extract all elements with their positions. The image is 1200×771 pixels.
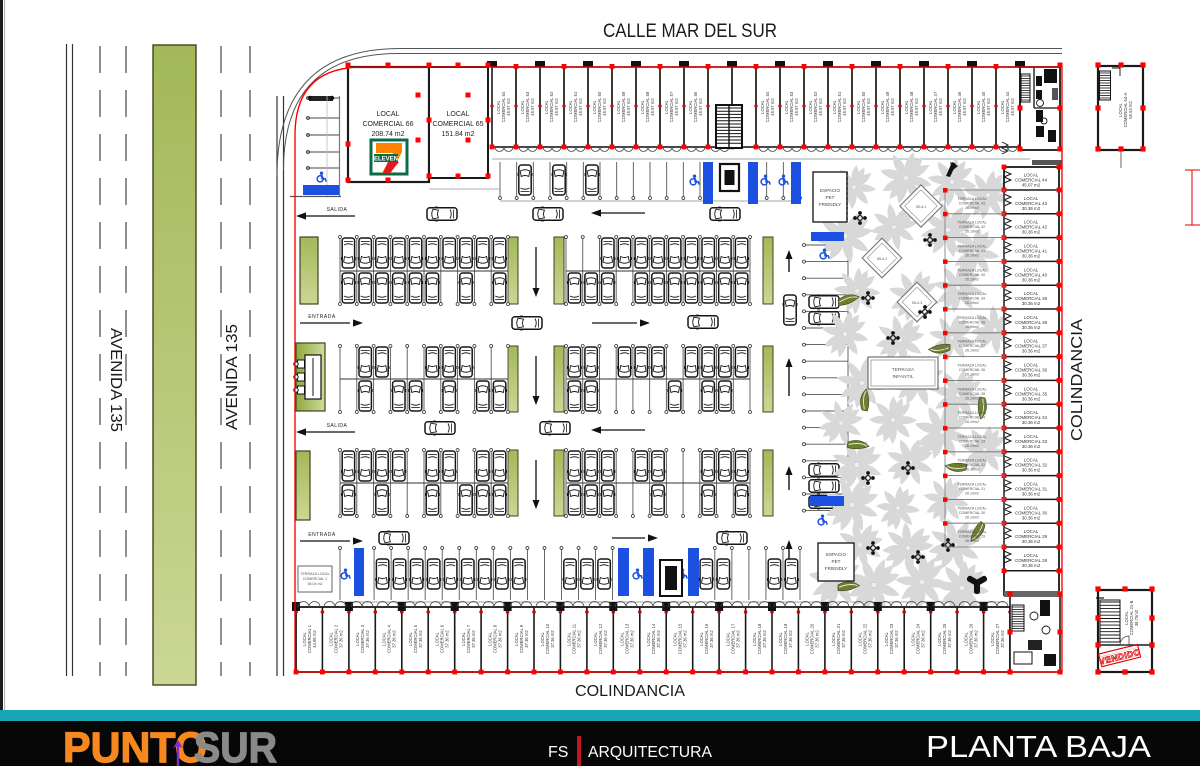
svg-text:26.19m2: 26.19m2 xyxy=(965,492,979,496)
svg-text:COMERCIAL 42: COMERCIAL 42 xyxy=(959,225,985,229)
svg-text:ISLA 1: ISLA 1 xyxy=(916,205,926,209)
svg-text:45.97 m2: 45.97 m2 xyxy=(626,98,631,116)
svg-text:26.19m2: 26.19m2 xyxy=(965,539,979,543)
svg-text:37.36 m2: 37.36 m2 xyxy=(682,630,687,648)
svg-text:TERRAZA LOCAL: TERRAZA LOCAL xyxy=(957,268,986,272)
svg-text:30.36 m2: 30.36 m2 xyxy=(1022,277,1041,282)
svg-text:37.36 m2: 37.36 m2 xyxy=(788,630,793,648)
svg-text:37.36 m2: 37.36 m2 xyxy=(339,630,344,648)
svg-text:COMERCIAL 38: COMERCIAL 38 xyxy=(959,320,985,324)
svg-text:TERRAZA LOCAL: TERRAZA LOCAL xyxy=(957,459,986,463)
svg-text:ISLA 2: ISLA 2 xyxy=(877,257,887,261)
svg-text:45.97 m2: 45.97 m2 xyxy=(914,98,919,116)
svg-text:37.36 m2: 37.36 m2 xyxy=(444,630,449,648)
svg-text:45.97 m2: 45.97 m2 xyxy=(602,98,607,116)
svg-text:26.19m2: 26.19m2 xyxy=(965,254,979,258)
svg-text:TERRAZA LOCAL: TERRAZA LOCAL xyxy=(957,245,986,249)
svg-text:COMERCIAL 30: COMERCIAL 30 xyxy=(959,511,985,515)
svg-text:45.97 m2: 45.97 m2 xyxy=(770,98,775,116)
svg-text:44.95 m2: 44.95 m2 xyxy=(312,630,317,648)
svg-text:30.36 m2: 30.36 m2 xyxy=(1022,468,1041,473)
svg-text:AVENIDA 135: AVENIDA 135 xyxy=(107,328,124,432)
svg-text:26.19m2: 26.19m2 xyxy=(965,373,979,377)
svg-text:37.36 m2: 37.36 m2 xyxy=(577,630,582,648)
svg-text:37.36 m2: 37.36 m2 xyxy=(709,630,714,648)
svg-text:30.36 m2: 30.36 m2 xyxy=(1022,515,1041,520)
svg-text:COLINDANCIA: COLINDANCIA xyxy=(1069,319,1086,441)
svg-text:30.36 m2: 30.36 m2 xyxy=(1022,373,1041,378)
svg-text:ESPACIO: ESPACIO xyxy=(826,552,847,557)
svg-text:45.97 m2: 45.97 m2 xyxy=(962,98,967,116)
svg-text:45.97 m2: 45.97 m2 xyxy=(938,98,943,116)
svg-text:37.36 m2: 37.36 m2 xyxy=(603,630,608,648)
svg-text:CALLE MAR DEL SUR: CALLE MAR DEL SUR xyxy=(603,21,777,42)
svg-text:COMERCIAL 40: COMERCIAL 40 xyxy=(959,273,985,277)
svg-text:COMERCIAL 1: COMERCIAL 1 xyxy=(303,577,327,581)
svg-text:COMERCIAL 35: COMERCIAL 35 xyxy=(959,392,985,396)
svg-text:26.19m2: 26.19m2 xyxy=(965,349,979,353)
svg-text:30.36 m2: 30.36 m2 xyxy=(1022,492,1041,497)
svg-text:36.04 m2: 36.04 m2 xyxy=(308,582,323,586)
svg-text:45.97 m2: 45.97 m2 xyxy=(986,98,991,116)
svg-text:45.97 m2: 45.97 m2 xyxy=(506,98,511,116)
svg-text:30.36 m2: 30.36 m2 xyxy=(1022,206,1041,211)
svg-text:COMERCIAL 33: COMERCIAL 33 xyxy=(959,439,985,443)
svg-text:37.36 m2: 37.36 m2 xyxy=(973,630,978,648)
svg-text:TERRAZA LOCAL: TERRAZA LOCAL xyxy=(957,387,986,391)
svg-text:COMERCIAL 43: COMERCIAL 43 xyxy=(959,201,985,205)
svg-text:55.63 m2: 55.63 m2 xyxy=(1128,101,1133,119)
svg-text:30.36 m2: 30.36 m2 xyxy=(1022,230,1041,235)
svg-text:TERRAZA LOCAL: TERRAZA LOCAL xyxy=(957,316,986,320)
svg-text:45.97 m2: 45.97 m2 xyxy=(794,98,799,116)
svg-text:PUNTO: PUNTO xyxy=(63,724,207,766)
svg-text:26.19m2: 26.19m2 xyxy=(965,301,979,305)
svg-text:38.75m2: 38.75m2 xyxy=(1134,609,1139,626)
svg-text:37.36 m2: 37.36 m2 xyxy=(894,630,899,648)
svg-text:AVENIDA 135: AVENIDA 135 xyxy=(224,324,241,430)
svg-text:TERRAZA LOCAL: TERRAZA LOCAL xyxy=(957,197,986,201)
svg-text:37.36 m2: 37.36 m2 xyxy=(841,630,846,648)
svg-text:TERRAZA LOCAL: TERRAZA LOCAL xyxy=(957,435,986,439)
svg-text:ELEVEN: ELEVEN xyxy=(374,157,398,163)
svg-text:TERRAZA LOCAL: TERRAZA LOCAL xyxy=(957,364,986,368)
svg-text:PET: PET xyxy=(832,559,841,564)
svg-text:SALIDA: SALIDA xyxy=(327,423,348,429)
svg-text:ENTRADA: ENTRADA xyxy=(308,314,336,320)
svg-text:30.36 m2: 30.36 m2 xyxy=(1022,420,1041,425)
svg-text:30.36 m2: 30.36 m2 xyxy=(1022,444,1041,449)
svg-text:30.36 m2: 30.36 m2 xyxy=(1022,539,1041,544)
svg-text:45.97 m2: 45.97 m2 xyxy=(578,98,583,116)
svg-text:151.84 m2: 151.84 m2 xyxy=(441,131,474,138)
svg-text:37.36 m2: 37.36 m2 xyxy=(762,630,767,648)
svg-text:37.36 m2: 37.36 m2 xyxy=(1000,630,1005,648)
svg-text:26.19m2: 26.19m2 xyxy=(965,325,979,329)
svg-text:37.36 m2: 37.36 m2 xyxy=(947,630,952,648)
svg-text:37.36 m2: 37.36 m2 xyxy=(630,630,635,648)
svg-text:26.19m2: 26.19m2 xyxy=(965,420,979,424)
svg-text:COMERCIAL 32: COMERCIAL 32 xyxy=(959,463,985,467)
svg-text:37.36 m2: 37.36 m2 xyxy=(418,630,423,648)
svg-text:30.36 m2: 30.36 m2 xyxy=(1022,396,1041,401)
svg-text:COMERCIAL 39: COMERCIAL 39 xyxy=(959,297,985,301)
svg-text:45.97 m2: 45.97 m2 xyxy=(818,98,823,116)
svg-text:45.97 m2: 45.97 m2 xyxy=(890,98,895,116)
svg-text:45.07 m2: 45.07 m2 xyxy=(1022,183,1041,188)
svg-text:26.19m2: 26.19m2 xyxy=(965,206,979,210)
svg-text:45.97 m2: 45.97 m2 xyxy=(1010,98,1015,116)
svg-text:26.19m2: 26.19m2 xyxy=(965,468,979,472)
svg-text:ISLA 3: ISLA 3 xyxy=(912,301,922,305)
svg-text:TERRAZA LOCAL: TERRAZA LOCAL xyxy=(957,411,986,415)
svg-text:37.36 m2: 37.36 m2 xyxy=(656,630,661,648)
svg-text:COLINDANCIA: COLINDANCIA xyxy=(575,683,685,700)
svg-text:45.97 m2: 45.97 m2 xyxy=(554,98,559,116)
svg-text:37.36 m2: 37.36 m2 xyxy=(365,630,370,648)
svg-text:COMERCIAL 41: COMERCIAL 41 xyxy=(959,249,985,253)
svg-text:30.36 m2: 30.36 m2 xyxy=(1022,349,1041,354)
svg-text:26.19m2: 26.19m2 xyxy=(965,444,979,448)
svg-text:26.19m2: 26.19m2 xyxy=(965,396,979,400)
svg-text:37.36 m2: 37.36 m2 xyxy=(868,630,873,648)
svg-text:37.36 m2: 37.36 m2 xyxy=(497,630,502,648)
svg-text:COMERCIAL 34: COMERCIAL 34 xyxy=(959,416,985,420)
svg-text:FS: FS xyxy=(548,744,568,761)
svg-text:INFANTIL: INFANTIL xyxy=(892,374,913,380)
svg-text:COMERCIAL 66: COMERCIAL 66 xyxy=(362,121,413,128)
svg-text:30.36 m2: 30.36 m2 xyxy=(1022,563,1041,568)
svg-text:26.19m2: 26.19m2 xyxy=(965,230,979,234)
svg-text:FRIENDLY: FRIENDLY xyxy=(825,566,847,571)
svg-text:ESPACIO: ESPACIO xyxy=(820,188,841,193)
svg-text:TERRAZA LOCAL: TERRAZA LOCAL xyxy=(300,572,329,576)
svg-text:30.36 m2: 30.36 m2 xyxy=(1022,325,1041,330)
svg-text:45.97 m2: 45.97 m2 xyxy=(674,98,679,116)
svg-text:26.19m2: 26.19m2 xyxy=(965,277,979,281)
svg-text:37.36 m2: 37.36 m2 xyxy=(735,630,740,648)
svg-text:26.19m2: 26.19m2 xyxy=(965,515,979,519)
svg-text:FRIENDLY: FRIENDLY xyxy=(819,202,841,207)
svg-text:37.36 m2: 37.36 m2 xyxy=(524,630,529,648)
svg-text:208.74 m2: 208.74 m2 xyxy=(371,131,404,138)
svg-text:30.36 m2: 30.36 m2 xyxy=(1022,301,1041,306)
svg-text:COMERCIAL 37: COMERCIAL 37 xyxy=(959,344,985,348)
svg-text:45.97 m2: 45.97 m2 xyxy=(842,98,847,116)
svg-text:37.36 m2: 37.36 m2 xyxy=(920,630,925,648)
svg-text:PLANTA BAJA: PLANTA BAJA xyxy=(926,729,1151,764)
svg-text:37.36 m2: 37.36 m2 xyxy=(471,630,476,648)
svg-text:LOCAL: LOCAL xyxy=(377,111,400,118)
svg-text:TERRAZA LOCAL: TERRAZA LOCAL xyxy=(957,506,986,510)
svg-text:37.36 m2: 37.36 m2 xyxy=(815,630,820,648)
svg-text:45.97 m2: 45.97 m2 xyxy=(530,98,535,116)
svg-text:COMERCIAL 29: COMERCIAL 29 xyxy=(959,535,985,539)
svg-text:ENTRADA: ENTRADA xyxy=(308,532,336,538)
svg-text:45.97 m2: 45.97 m2 xyxy=(650,98,655,116)
svg-text:TERRAZA LOCAL: TERRAZA LOCAL xyxy=(957,530,986,534)
svg-text:45.97 m2: 45.97 m2 xyxy=(866,98,871,116)
svg-text:SALIDA: SALIDA xyxy=(327,207,348,213)
svg-text:37.36 m2: 37.36 m2 xyxy=(392,630,397,648)
svg-text:45.97 m2: 45.97 m2 xyxy=(698,98,703,116)
svg-text:30.36 m2: 30.36 m2 xyxy=(1022,254,1041,259)
svg-text:37.36 m2: 37.36 m2 xyxy=(550,630,555,648)
svg-text:COMERCIAL 36: COMERCIAL 36 xyxy=(959,368,985,372)
svg-text:SUR: SUR xyxy=(194,724,277,766)
svg-text:ARQUITECTURA: ARQUITECTURA xyxy=(588,744,713,761)
svg-text:COMERCIAL 65: COMERCIAL 65 xyxy=(432,121,483,128)
svg-text:TERRAZA LOCAL: TERRAZA LOCAL xyxy=(957,483,986,487)
svg-text:TERRAZA LOCAL: TERRAZA LOCAL xyxy=(957,340,986,344)
svg-text:COMERCIAL 31: COMERCIAL 31 xyxy=(959,487,985,491)
svg-text:LOCAL: LOCAL xyxy=(447,111,470,118)
svg-text:TERRAZA: TERRAZA xyxy=(892,367,915,373)
svg-text:PET: PET xyxy=(826,195,835,200)
svg-text:TERRAZA LOCAL: TERRAZA LOCAL xyxy=(957,221,986,225)
svg-text:TERRAZA LOCAL: TERRAZA LOCAL xyxy=(957,292,986,296)
